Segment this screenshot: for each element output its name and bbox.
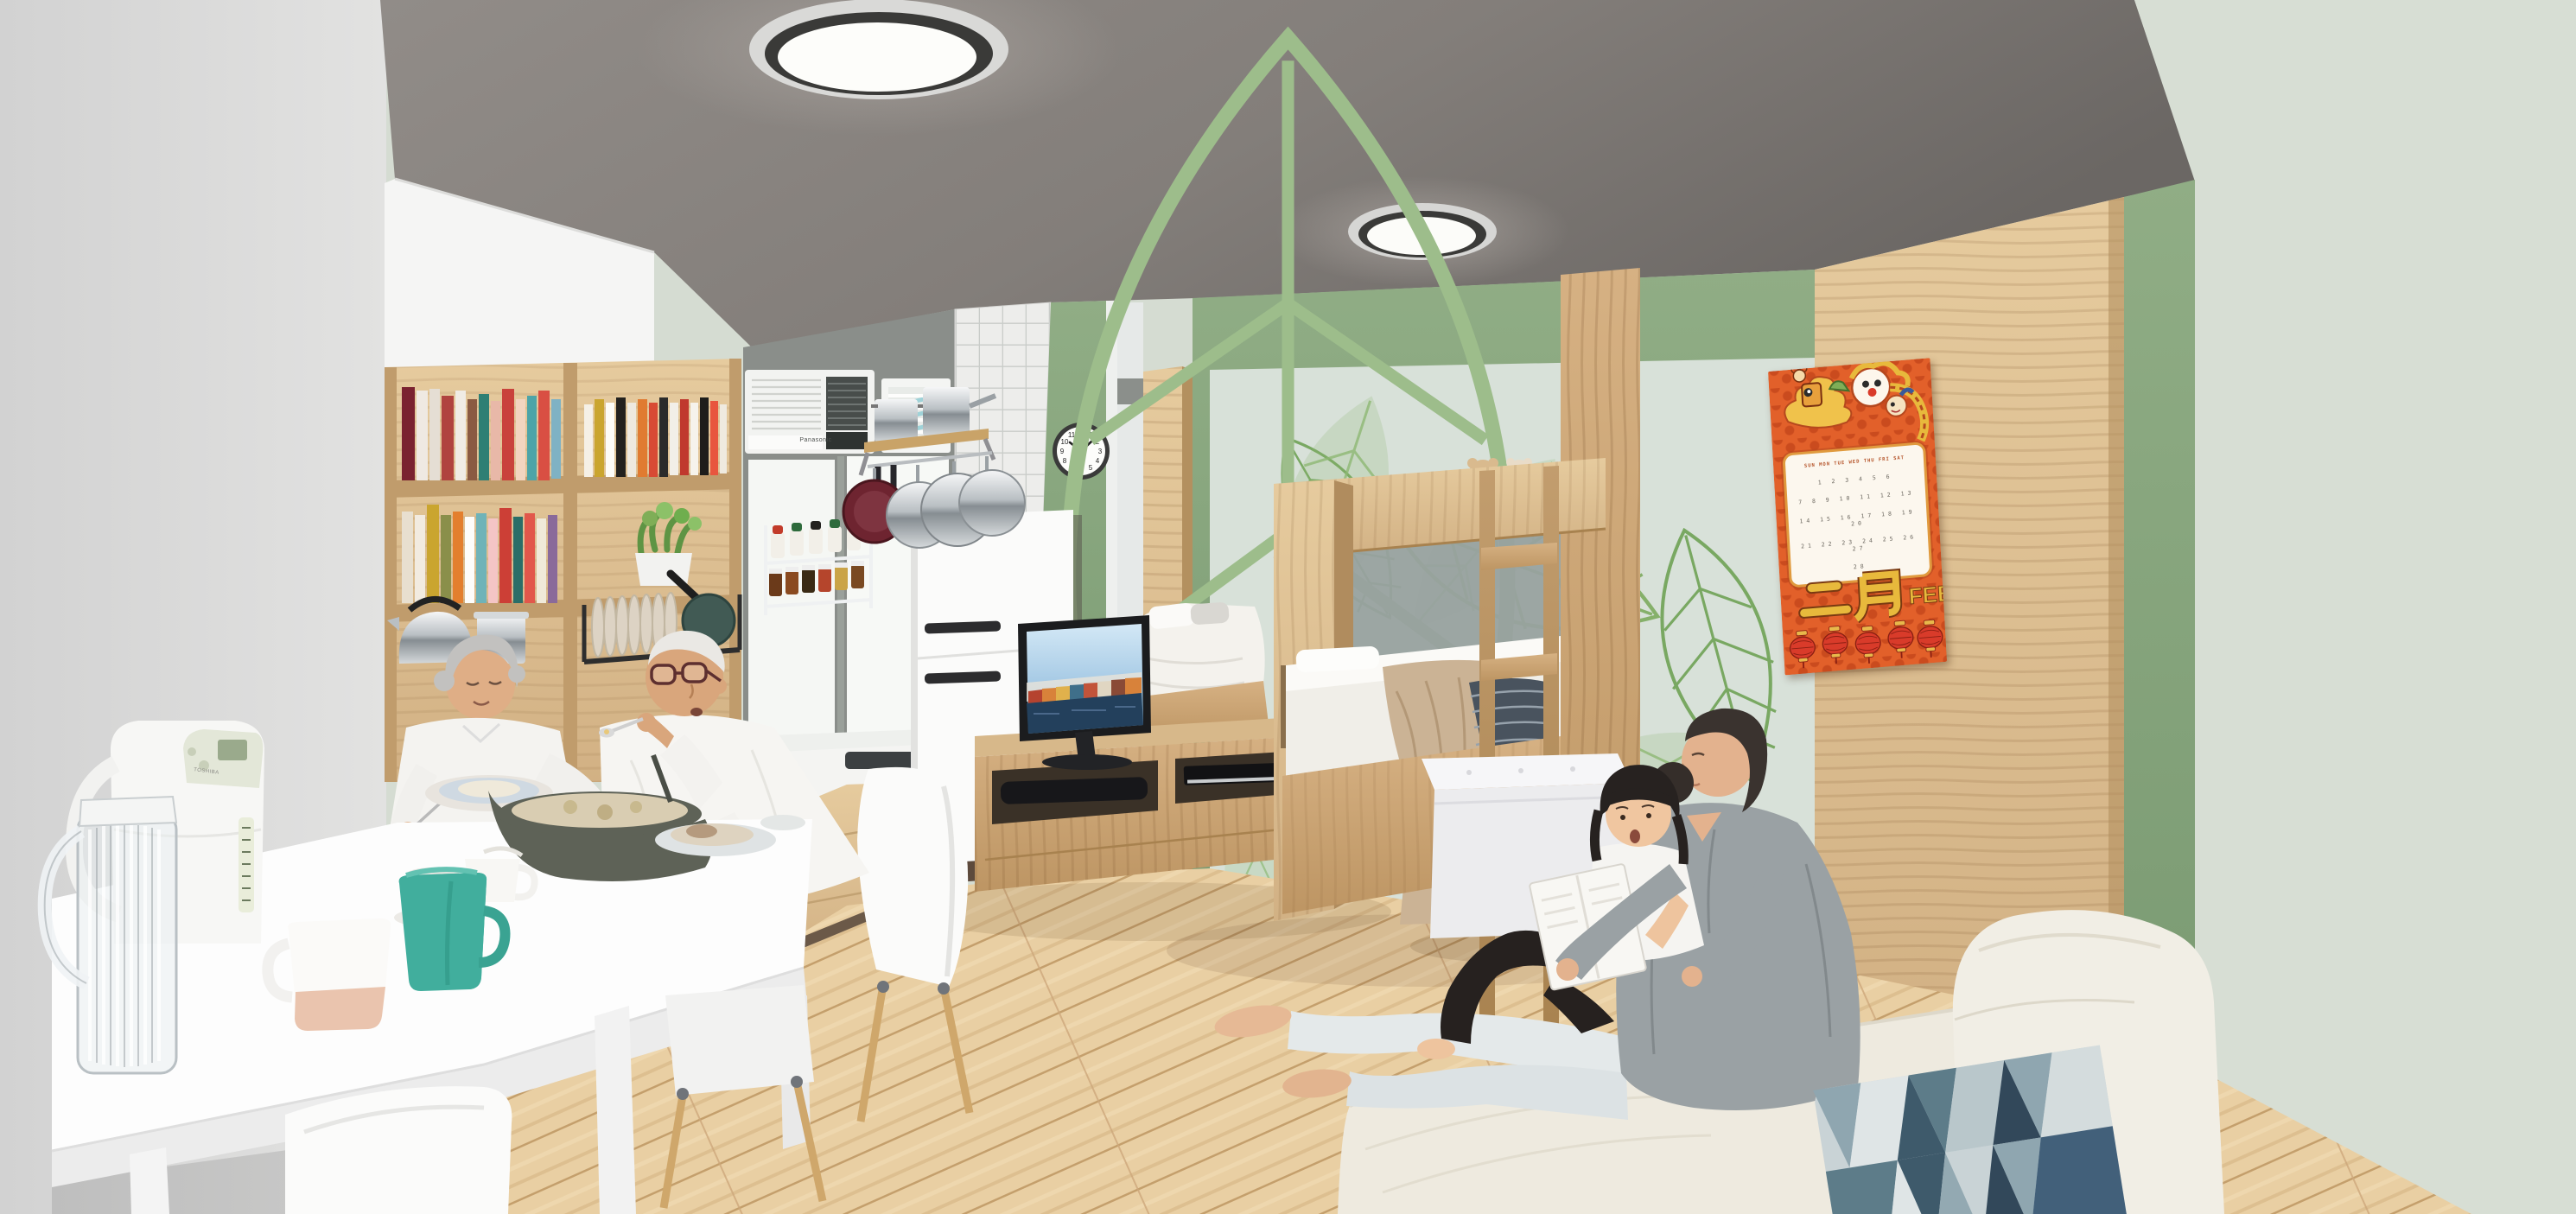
child-foot xyxy=(1417,1039,1455,1059)
mug-pink-base xyxy=(295,987,385,1031)
books-row xyxy=(402,505,557,603)
bunk-pillow xyxy=(1295,646,1379,673)
poster-week-row: 1 2 3 4 5 6 xyxy=(1790,471,1920,489)
lion-dance-art xyxy=(1768,358,1935,454)
ceiling-light-1 xyxy=(749,0,1008,99)
clock-numeral-8: 8 xyxy=(1063,457,1067,465)
clock-numeral-10: 10 xyxy=(1061,438,1069,446)
scene-canvas: 12 1 2 3 4 5 6 7 8 9 10 11 xyxy=(0,0,2576,1214)
dining-chair-front xyxy=(285,1086,512,1214)
poster-week-row: 21 22 23 24 25 26 27 xyxy=(1794,533,1924,558)
cny-calendar-poster: 二月 SUN MON TUE WED THU FRI SAT 1 2 3 4 5… xyxy=(1768,358,1947,675)
poster-week-row: 14 15 16 17 18 19 20 xyxy=(1793,507,1923,532)
brand-label-ac: Panasonic xyxy=(776,437,855,443)
month-cn-glyphs xyxy=(1803,574,1898,623)
mouth xyxy=(690,708,703,716)
clock-numeral-3: 3 xyxy=(1098,448,1103,455)
clock-numeral-5: 5 xyxy=(1089,464,1093,472)
poster-week-row: 7 8 9 10 11 12 13 xyxy=(1791,489,1921,507)
open-mouth xyxy=(1630,829,1640,843)
bed-pillow xyxy=(1190,601,1230,625)
tv-screen xyxy=(1027,624,1143,734)
apartment-interior-rendering: 12 1 2 3 4 5 6 7 8 9 10 11 xyxy=(0,0,2576,1214)
clock-numeral-4: 4 xyxy=(1096,457,1100,465)
pitcher-lid xyxy=(80,797,176,826)
poster-weekday-row: SUN MON TUE WED THU FRI SAT xyxy=(1790,454,1919,470)
poster-month-en: FEB xyxy=(1908,580,1944,609)
window-pane xyxy=(748,460,835,741)
bed-pillow xyxy=(1148,602,1195,629)
clock-numeral-9: 9 xyxy=(1060,448,1065,455)
